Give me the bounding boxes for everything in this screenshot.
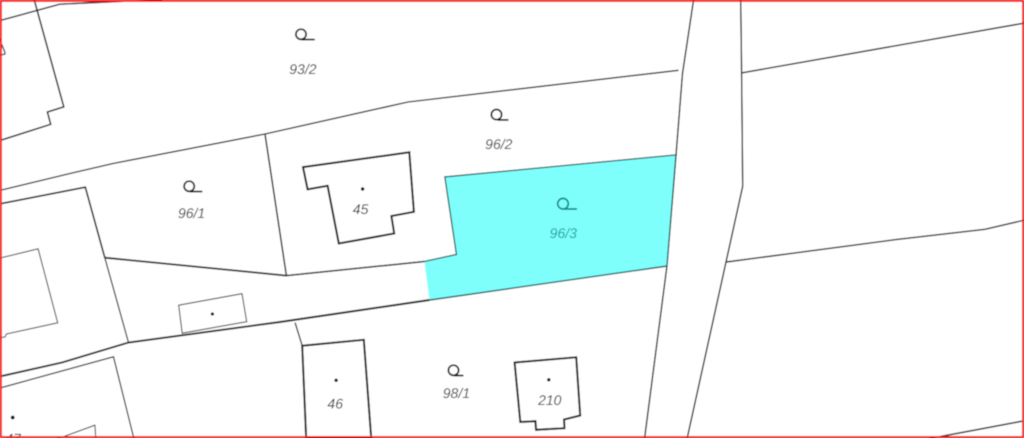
svg-text:93/2: 93/2 (289, 61, 316, 77)
svg-text:98/1: 98/1 (443, 385, 470, 401)
svg-text:210: 210 (537, 392, 562, 408)
svg-text:96/1: 96/1 (178, 205, 205, 221)
svg-text:45: 45 (353, 201, 369, 217)
svg-text:96/2: 96/2 (485, 136, 512, 152)
svg-text:46: 46 (327, 395, 343, 411)
